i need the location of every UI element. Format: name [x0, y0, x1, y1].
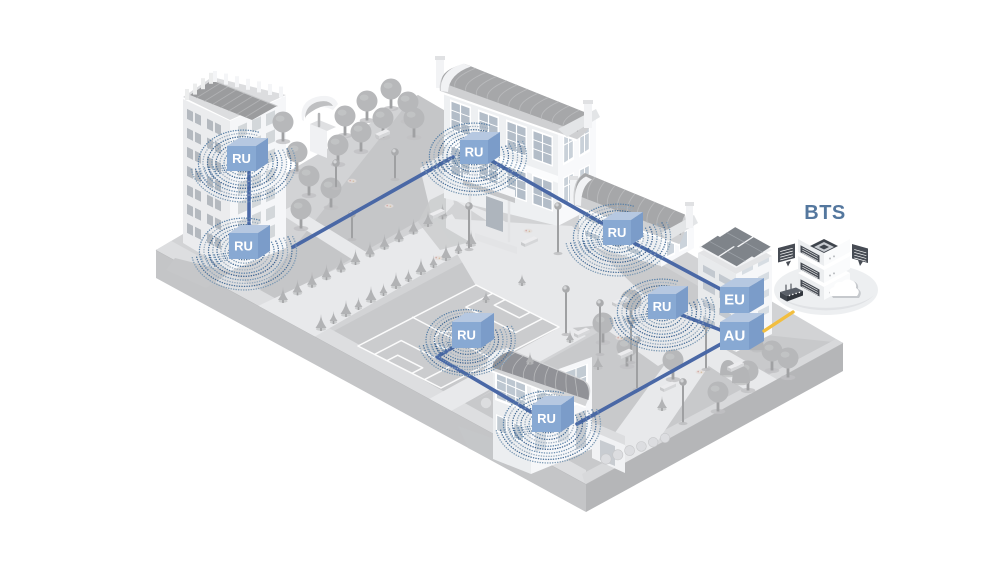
svg-text:AU: AU [724, 328, 746, 345]
svg-text:RU: RU [653, 299, 672, 314]
svg-text:EU: EU [724, 292, 745, 309]
svg-text:RU: RU [457, 328, 476, 343]
svg-text:RU: RU [465, 145, 484, 160]
svg-text:RU: RU [608, 225, 627, 240]
svg-text:BTS: BTS [804, 202, 846, 224]
svg-text:RU: RU [234, 239, 253, 254]
svg-text:RU: RU [537, 411, 556, 426]
svg-text:RU: RU [232, 151, 251, 166]
